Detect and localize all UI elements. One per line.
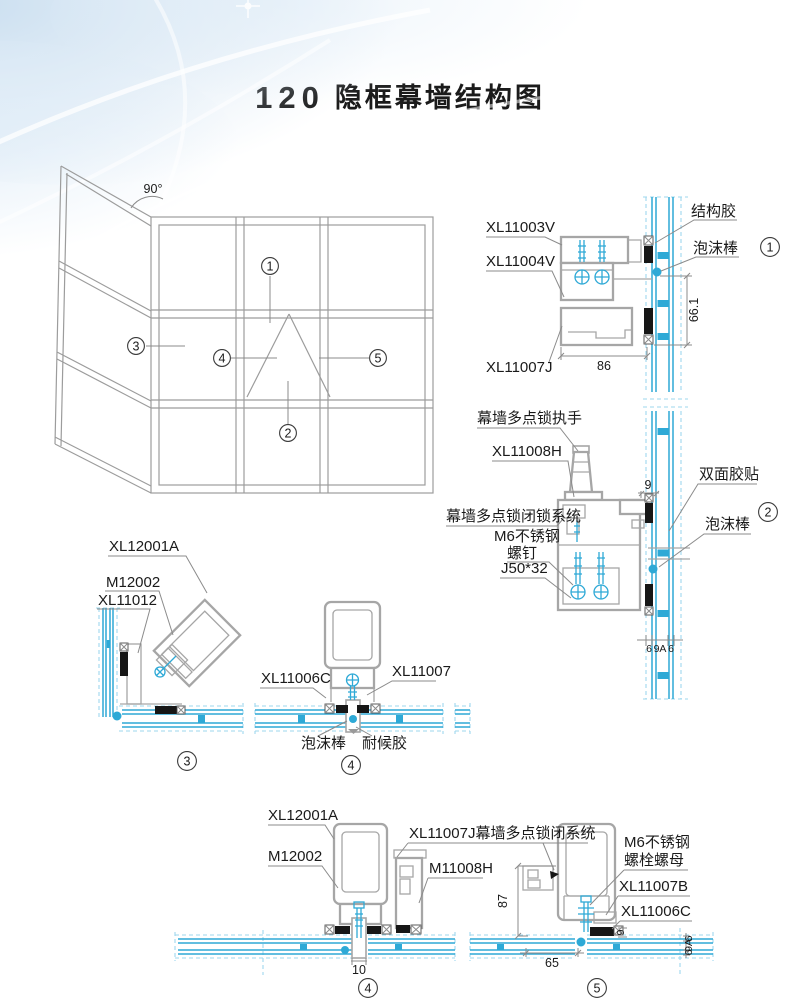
svg-text:6: 6 — [668, 643, 674, 655]
detail-5-left-callout-num: 4 — [365, 982, 372, 996]
svg-text:9A: 9A — [654, 643, 667, 655]
label-structural-sealant: 结构胶 — [691, 203, 736, 220]
foam-rod-dot — [653, 268, 662, 277]
bolt-icon — [578, 896, 594, 932]
label-foam-rod: 泡沫棒 — [301, 735, 346, 752]
profile-xl11007j — [561, 308, 632, 345]
lock-handle — [565, 446, 602, 500]
foam-rod-dot — [113, 712, 122, 721]
elevation-callout-2-num: 2 — [285, 427, 292, 441]
label-xl11012: XL11012 — [98, 592, 157, 609]
label-double-sided-tape: 双面胶贴 — [699, 466, 759, 483]
svg-text:65: 65 — [545, 956, 559, 970]
detail-2-callout-num: 2 — [765, 506, 772, 520]
label-xl11007: XL11007 — [392, 663, 451, 680]
dimension-86: 86 — [558, 347, 650, 373]
mullion-tongue — [352, 918, 366, 958]
label-m12002: M12002 — [268, 848, 322, 865]
foam-rod-dot — [349, 715, 357, 723]
dimension-glass-6-9a-6: 6 9A 6 — [637, 635, 683, 655]
drawing-sheet: 120隐框幕墙结构图 — [0, 0, 800, 1004]
svg-text:10: 10 — [352, 963, 366, 977]
detail-3: XL12001A M12002 XL11012 3 — [96, 538, 240, 770]
foam-rod-dot — [341, 946, 349, 954]
label-m6-bolt-line1: M6不锈钢 — [624, 834, 690, 851]
elevation-callout-1-num: 1 — [267, 260, 274, 274]
svg-text:6: 6 — [683, 935, 695, 941]
label-lock-system: 幕墙多点锁闭锁系统 — [446, 508, 581, 525]
label-foam-rod: 泡沫棒 — [705, 516, 750, 533]
foam-rod-dot — [577, 938, 586, 947]
svg-text:9: 9 — [615, 929, 627, 935]
elevation-callout-4-num: 4 — [219, 352, 226, 366]
label-xl11006c: XL11006C — [261, 670, 331, 687]
label-xl12001a: XL12001A — [109, 538, 179, 555]
label-xl11008h: XL11008H — [492, 443, 562, 460]
angle-label: 90° — [144, 182, 163, 196]
label-m11008h: M11008H — [429, 860, 493, 877]
glass-unit-vertical-3 — [96, 608, 120, 717]
foam-rod-dot — [649, 565, 658, 574]
detail-1: XL11003V XL11004V XL11007J 结构胶 泡沫棒 66.1 … — [486, 197, 779, 392]
structure-diagram: 90° 1 2 3 4 5 — [0, 0, 800, 1004]
detail-5-callout-num: 5 — [594, 982, 601, 996]
detail-5: XL12001A M12002 XL11007J幕墙多点锁闭系统 M11008H… — [268, 807, 695, 997]
detail-1-callout-num: 1 — [767, 241, 774, 255]
gasket-xl11006c — [590, 927, 614, 936]
detail-4-callout-num: 4 — [348, 759, 355, 773]
label-lock-system: XL11007J幕墙多点锁闭系统 — [409, 825, 595, 842]
grid-outer-frame — [151, 217, 433, 493]
dimension-glass-6-9a-6-vertical: 6 9A 6 — [683, 933, 695, 958]
label-xl11003v: XL11003V — [486, 219, 555, 236]
label-j50: J50*32 — [501, 560, 548, 577]
svg-text:6: 6 — [646, 643, 652, 655]
label-foam-rod: 泡沫棒 — [693, 240, 738, 257]
profile-xl11003v — [561, 237, 641, 263]
profile-xl12001a-corner — [154, 600, 240, 686]
glass-band-bottom — [175, 928, 713, 977]
label-xl12001a: XL12001A — [268, 807, 338, 824]
detail-2: 幕墙多点锁执手 XL11008H 幕墙多点锁闭锁系统 M6不锈钢 螺钉 J50*… — [446, 399, 777, 699]
label-xl11006c: XL11006C — [621, 903, 691, 920]
label-xl11007b: XL11007B — [619, 878, 688, 895]
label-xl11007j: XL11007J — [486, 359, 552, 376]
dimension-10: 10 — [351, 958, 367, 977]
label-lock-handle: 幕墙多点锁执手 — [477, 410, 582, 427]
detail-4: XL11006C XL11007 泡沫棒 耐候胶 4 — [260, 602, 451, 774]
label-weather-sealant: 耐候胶 — [362, 735, 407, 752]
dimension-65: 65 — [520, 948, 584, 970]
svg-text:86: 86 — [597, 359, 611, 373]
svg-text:9: 9 — [645, 478, 652, 492]
label-m6-bolt-line2: 螺栓螺母 — [624, 852, 684, 869]
label-m6-screw-line1: M6不锈钢 — [494, 528, 560, 545]
elevation-callout-5-num: 5 — [375, 352, 382, 366]
svg-text:66.1: 66.1 — [687, 298, 701, 322]
profile-m11008h — [394, 850, 426, 934]
dimension-87: 87 — [496, 863, 556, 939]
label-xl11004v: XL11004V — [486, 253, 555, 270]
grid-mullions — [151, 217, 433, 493]
glass-unit-vertical-1 — [643, 197, 688, 392]
svg-text:87: 87 — [496, 894, 510, 908]
elevation-callout-3-num: 3 — [133, 340, 140, 354]
label-m12002: M12002 — [106, 574, 160, 591]
detail-3-callout-num: 3 — [184, 755, 191, 769]
